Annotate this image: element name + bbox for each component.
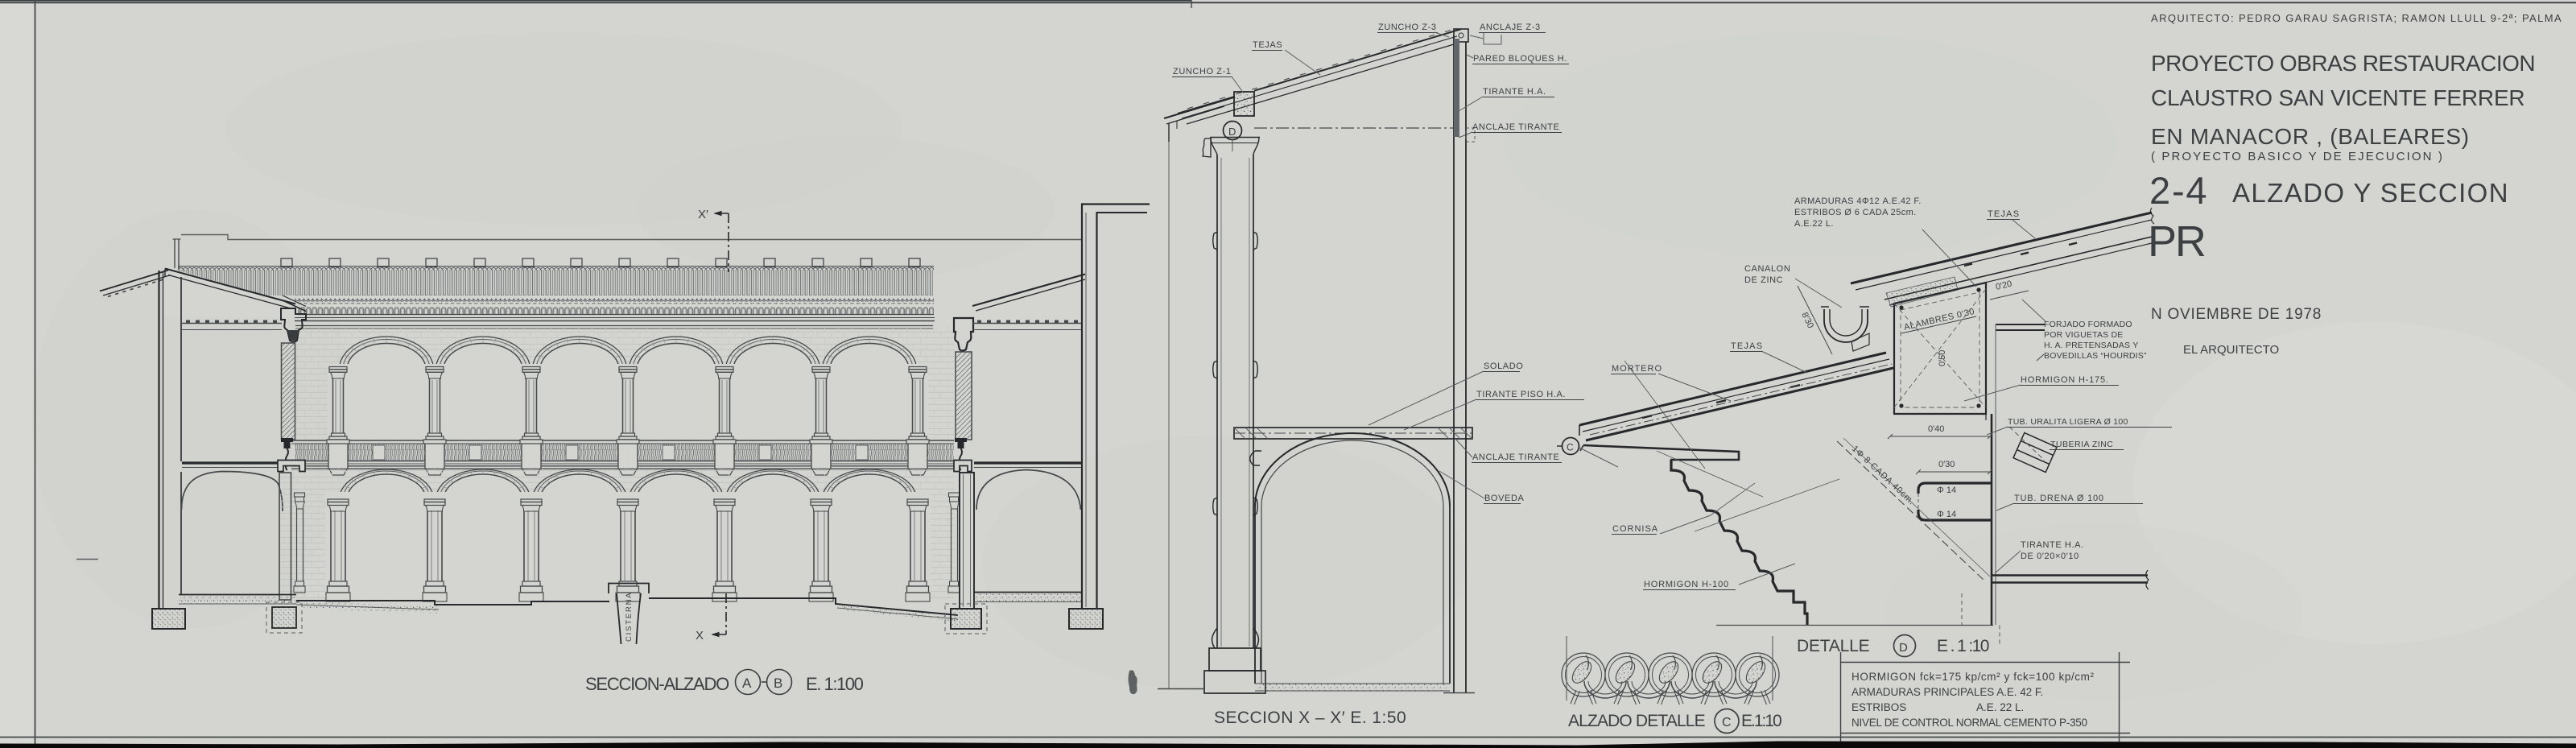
- svg-text:ARMADURAS PRINCIPALES A.E. 4: ARMADURAS PRINCIPALES A.E. 42 F.: [1851, 686, 2043, 698]
- svg-text:MORTERO: MORTERO: [1612, 364, 1662, 374]
- svg-text:ESTRIBOS: ESTRIBOS: [1851, 701, 1906, 713]
- svg-text:PARED BLOQUES H.: PARED BLOQUES H.: [1473, 54, 1567, 64]
- svg-text:A: A: [742, 676, 752, 691]
- svg-text:PR: PR: [2148, 217, 2205, 266]
- svg-text:FORJADO FORMADO: FORJADO FORMADO: [2044, 320, 2132, 329]
- svg-text:TUB. DRENA Ø 100: TUB. DRENA Ø 100: [2014, 494, 2104, 503]
- svg-text:TEJAS: TEJAS: [1253, 40, 1282, 50]
- svg-text:SECCION X – X′ E. 1:50: SECCION X – X′ E. 1:50: [1214, 709, 1406, 727]
- svg-text:ANCLAJE TIRANTE: ANCLAJE TIRANTE: [1472, 122, 1559, 132]
- svg-text:DE 0′20×0′10: DE 0′20×0′10: [2021, 552, 2079, 561]
- svg-text:ESTRIBOS Ø 6 CADA 25cm.: ESTRIBOS Ø 6 CADA 25cm.: [1794, 208, 1917, 217]
- svg-text:CLAUSTRO SAN VICENTE FERRER: CLAUSTRO SAN VICENTE FERRER: [2151, 85, 2524, 110]
- svg-text:TIRANTE PISO H.A.: TIRANTE PISO H.A.: [1476, 390, 1566, 399]
- svg-text:0′40: 0′40: [1928, 424, 1944, 434]
- svg-text:HORMIGON H-175.: HORMIGON H-175.: [2021, 375, 2109, 385]
- svg-text:X′: X′: [698, 208, 708, 221]
- svg-text:E. 1:100: E. 1:100: [806, 674, 864, 694]
- svg-text:ANCLAJE Z-3: ANCLAJE Z-3: [1480, 23, 1541, 32]
- svg-text:DETALLE: DETALLE: [1797, 637, 1870, 655]
- svg-text:TEJAS: TEJAS: [1988, 209, 2020, 219]
- svg-text:ARQUITECTO: PEDRO GARAU SAG: ARQUITECTO: PEDRO GARAU SAGRISTA; RAMON …: [2151, 12, 2562, 24]
- svg-text:TIRANTE H.A.: TIRANTE H.A.: [2021, 540, 2084, 550]
- svg-text:CORNISA: CORNISA: [1612, 524, 1658, 534]
- svg-text:0′30: 0′30: [1938, 460, 1955, 469]
- svg-text:CISTERNA: CISTERNA: [625, 592, 634, 642]
- svg-text:ALZADO Y SECCION: ALZADO Y SECCION: [2232, 178, 2509, 208]
- svg-text:NIVEL DE CONTROL NORMAL: NIVEL DE CONTROL NORMAL CEMENTO P-350: [1851, 717, 2087, 729]
- svg-text:A.E.22 L.: A.E.22 L.: [1794, 219, 1834, 229]
- svg-text:ZUNCHO Z-1: ZUNCHO Z-1: [1173, 67, 1232, 76]
- svg-text:TUB. URALITA LIGERA Ø 100: TUB. URALITA LIGERA Ø 100: [2008, 417, 2128, 427]
- svg-text:2-4: 2-4: [2149, 169, 2208, 212]
- svg-text:BOVEDILLAS “HOURDIS”: BOVEDILLAS “HOURDIS”: [2044, 351, 2147, 361]
- svg-text:B: B: [774, 676, 782, 691]
- svg-text:DE ZINC: DE ZINC: [1744, 275, 1783, 285]
- svg-text:A.E. 22 L.: A.E. 22 L.: [1976, 701, 2024, 713]
- svg-text:EL ARQUITECTO: EL ARQUITECTO: [2183, 343, 2279, 357]
- svg-text:C: C: [1567, 442, 1574, 453]
- svg-text:ALZADO DETALLE: ALZADO DETALLE: [1568, 712, 1706, 730]
- svg-text:ZUNCHO Z-3: ZUNCHO Z-3: [1378, 23, 1437, 32]
- svg-text:TUBERIA ZINC: TUBERIA ZINC: [2050, 440, 2113, 449]
- svg-text:CANALON: CANALON: [1744, 264, 1790, 274]
- svg-text:BOVEDA: BOVEDA: [1484, 494, 1525, 503]
- svg-text:Φ 14: Φ 14: [1937, 486, 1956, 495]
- svg-text:X: X: [696, 629, 704, 643]
- svg-text:HORMIGON H-100: HORMIGON H-100: [1644, 580, 1729, 589]
- svg-text:E . 1 :10: E . 1 :10: [1937, 637, 1989, 655]
- svg-text:SOLADO: SOLADO: [1484, 362, 1523, 371]
- svg-text:PROYECTO OBRAS RESTAURACION: PROYECTO OBRAS RESTAURACION: [2151, 51, 2535, 76]
- svg-text:ARMADURAS 4Φ12 A.E.42 F.: ARMADURAS 4Φ12 A.E.42 F.: [1794, 196, 1922, 206]
- svg-text:ANCLAJE TIRANTE: ANCLAJE TIRANTE: [1472, 453, 1559, 462]
- svg-text:POR VIGUETAS DE: POR VIGUETAS DE: [2044, 330, 2124, 340]
- svg-text:N OVIEMBRE DE 1978: N OVIEMBRE DE 1978: [2151, 306, 2322, 323]
- svg-text:TIRANTE H.A.: TIRANTE H.A.: [1483, 87, 1546, 97]
- svg-text:HORMIGON fck=175 kp/cm² y f: HORMIGON fck=175 kp/cm² y fck=100 kp/cm²: [1851, 671, 2095, 683]
- svg-text:C: C: [1722, 716, 1732, 729]
- svg-text:H. A. PRETENSADAS Y: H. A. PRETENSADAS Y: [2044, 341, 2138, 350]
- svg-text:TEJAS: TEJAS: [1731, 341, 1763, 351]
- svg-text:( PROYECTO BASICO Y DE EJ: ( PROYECTO BASICO Y DE EJECUCION ): [2151, 150, 2444, 163]
- svg-text:0′50: 0′50: [1938, 350, 1947, 366]
- svg-text:D: D: [1228, 126, 1236, 138]
- svg-text:EN MANACOR , (BALEARES): EN MANACOR , (BALEARES): [2151, 124, 2470, 149]
- svg-text:D: D: [1899, 641, 1908, 655]
- svg-text:Φ 14: Φ 14: [1937, 510, 1956, 519]
- svg-text:E.1:10: E.1:10: [1741, 712, 1781, 730]
- svg-text:SECCION-ALZADO: SECCION-ALZADO: [585, 674, 729, 694]
